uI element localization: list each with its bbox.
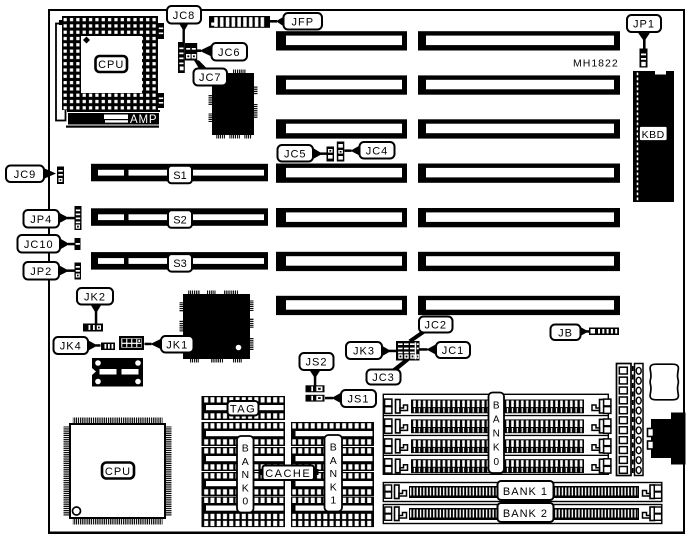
- svg-text:JS2: JS2: [306, 357, 328, 369]
- svg-text:N: N: [493, 429, 500, 440]
- svg-text:CPU: CPU: [98, 59, 124, 71]
- svg-text:B: B: [330, 441, 337, 453]
- svg-text:A: A: [493, 414, 500, 425]
- svg-text:0: 0: [242, 496, 248, 508]
- svg-text:K: K: [242, 482, 249, 494]
- svg-text:JC1: JC1: [442, 345, 465, 357]
- svg-text:B: B: [493, 400, 500, 411]
- svg-text:JK4: JK4: [60, 341, 82, 353]
- svg-text:JC8: JC8: [173, 10, 196, 22]
- svg-text:BANK 1: BANK 1: [503, 486, 548, 498]
- svg-text:N: N: [241, 469, 249, 481]
- svg-text:JK3: JK3: [353, 346, 375, 358]
- svg-text:JC6: JC6: [218, 47, 241, 59]
- svg-text:JFP: JFP: [291, 16, 314, 28]
- svg-text:JK1: JK1: [166, 339, 188, 351]
- svg-text:MH1822: MH1822: [573, 58, 619, 70]
- svg-text:JB: JB: [558, 327, 573, 339]
- svg-text:KBD: KBD: [642, 129, 665, 141]
- svg-text:JP1: JP1: [633, 19, 655, 31]
- svg-text:JC7: JC7: [199, 72, 222, 84]
- svg-text:JC9: JC9: [14, 169, 37, 181]
- svg-text:B: B: [242, 442, 249, 454]
- svg-text:A: A: [330, 455, 337, 467]
- svg-text:S2: S2: [173, 214, 186, 226]
- svg-text:JS1: JS1: [348, 394, 370, 406]
- svg-text:0: 0: [493, 457, 499, 468]
- svg-text:BANK 2: BANK 2: [503, 508, 548, 520]
- svg-text:K: K: [330, 481, 337, 493]
- svg-text:S3: S3: [173, 258, 186, 270]
- svg-text:N: N: [329, 468, 337, 480]
- svg-text:TAG: TAG: [230, 404, 256, 416]
- svg-text:JC3: JC3: [372, 372, 395, 384]
- svg-text:JP4: JP4: [30, 214, 52, 226]
- svg-text:S1: S1: [173, 170, 186, 182]
- svg-text:JC5: JC5: [284, 148, 307, 160]
- svg-text:JC10: JC10: [24, 239, 54, 251]
- svg-text:A: A: [242, 456, 249, 468]
- svg-text:CACHE: CACHE: [265, 468, 311, 480]
- svg-text:JC4: JC4: [366, 145, 389, 157]
- svg-text:CPU: CPU: [105, 466, 131, 478]
- svg-text:AMP: AMP: [130, 114, 157, 126]
- svg-text:1: 1: [330, 495, 336, 507]
- svg-text:JP2: JP2: [30, 266, 52, 278]
- svg-text:K: K: [493, 443, 500, 454]
- svg-text:JK2: JK2: [84, 291, 106, 303]
- svg-text:JC2: JC2: [424, 320, 447, 332]
